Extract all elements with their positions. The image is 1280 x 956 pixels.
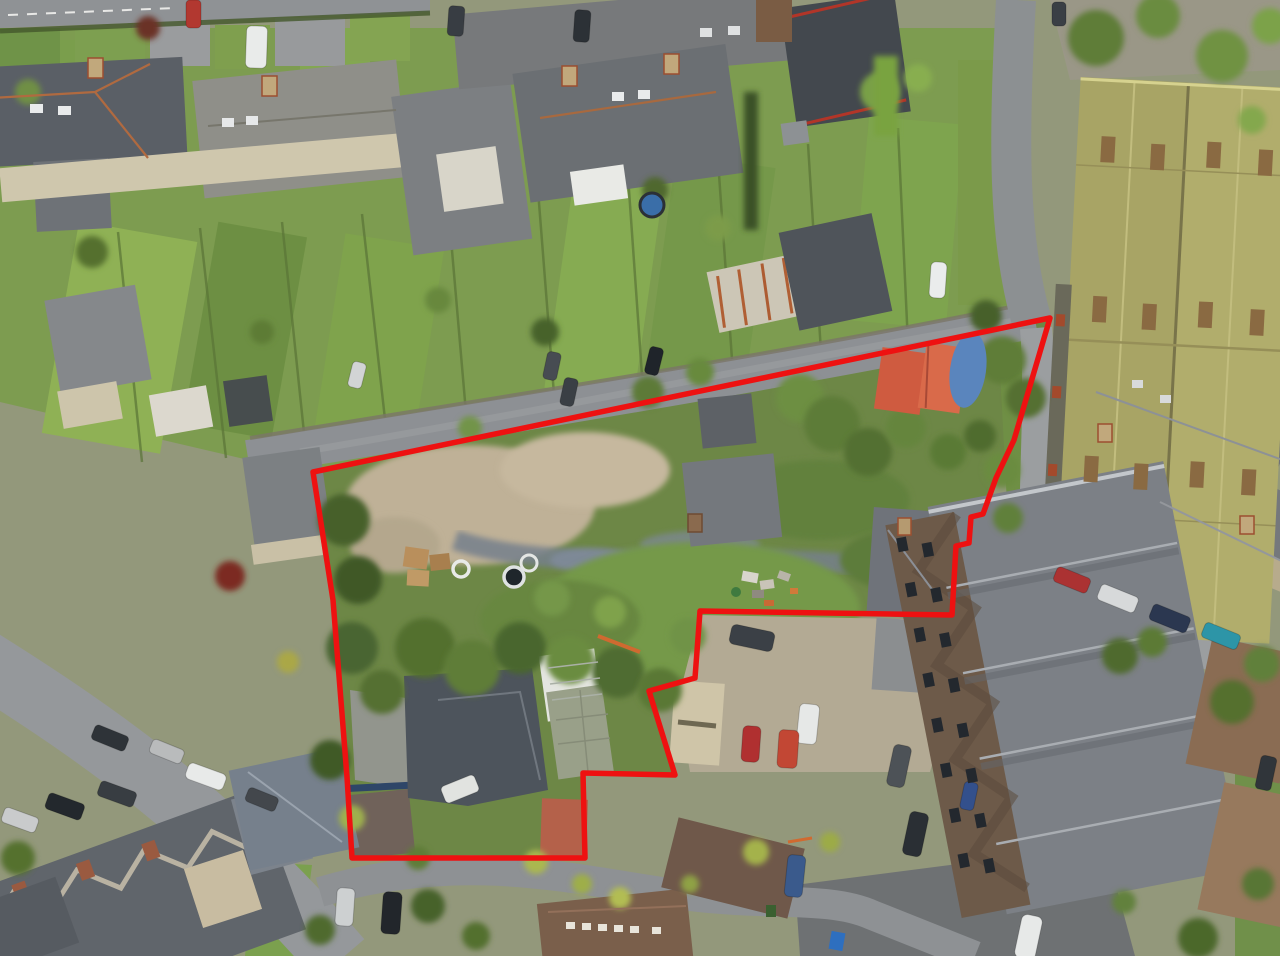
tree [686, 358, 714, 386]
hedge-strip [874, 56, 898, 136]
tree [494, 622, 546, 674]
site-house-roof-center2 [698, 393, 757, 448]
tree [1210, 680, 1254, 724]
tree [1, 841, 35, 875]
car [573, 9, 591, 42]
car [784, 854, 806, 898]
brown-roof [756, 0, 792, 42]
north-lane [1011, 0, 1032, 322]
hedge-bush [904, 64, 932, 92]
chimney [562, 66, 577, 86]
tree [592, 646, 644, 698]
lane-bush [609, 887, 631, 909]
industrial-skylight [1249, 309, 1264, 336]
terrace-window [614, 925, 623, 932]
lane-bush [681, 875, 699, 893]
skylight [728, 26, 740, 35]
terrace-window [630, 926, 639, 933]
pallet-stack [429, 553, 451, 571]
skylight [58, 106, 71, 115]
junk-orange [790, 588, 798, 594]
car [335, 887, 356, 926]
rust-door [1052, 386, 1062, 398]
skylight [1132, 380, 1143, 388]
industrial-skylight [1084, 456, 1099, 483]
chimney [1098, 424, 1112, 442]
dark-garden-shed [223, 375, 273, 427]
car [929, 261, 947, 298]
tree [1244, 646, 1280, 682]
chimney [1240, 516, 1254, 534]
skylight [612, 92, 624, 101]
pallet-stack [407, 569, 430, 586]
garden-tree [531, 318, 559, 346]
tree [1102, 638, 1138, 674]
aerial-photo: Aerial drone photograph of a residential… [0, 0, 1280, 956]
chimney [88, 58, 103, 78]
tree [964, 420, 996, 452]
front-driveway [275, 18, 345, 66]
aerial-photo-canvas: Aerial drone photograph of a residential… [0, 0, 1280, 956]
industrial-skylight [1133, 463, 1148, 490]
car [186, 0, 201, 28]
industrial-skylight [1150, 144, 1165, 171]
yellow-bush [277, 651, 299, 673]
industrial-skylight [1189, 461, 1204, 488]
conservatory-roof [436, 146, 503, 212]
trampoline [640, 193, 664, 217]
skylight [30, 104, 43, 113]
industrial-skylight [1142, 304, 1157, 331]
skylight [700, 28, 712, 37]
garden-tree [15, 79, 41, 105]
green-barrel [731, 587, 741, 597]
garden-tree [250, 320, 274, 344]
tree [1137, 627, 1167, 657]
red-tile-shed [540, 798, 588, 858]
terrace-window [598, 924, 607, 931]
industrial-skylight [1206, 142, 1221, 169]
tree [1242, 868, 1274, 900]
tree [1068, 10, 1124, 66]
suv [381, 891, 403, 934]
tree [1112, 890, 1136, 914]
tree [411, 889, 445, 923]
terrace-window [652, 927, 661, 934]
car [741, 725, 761, 762]
tree [444, 640, 500, 696]
lane-bush [572, 874, 592, 894]
red-foliage-bush [136, 16, 160, 40]
tree [1238, 106, 1266, 134]
house-roof [44, 285, 151, 396]
tree [1196, 30, 1248, 82]
hedge-strip [744, 92, 758, 230]
garden-shed [781, 120, 810, 145]
junk-debris [752, 590, 764, 598]
tree [305, 915, 335, 945]
lane-bush [524, 850, 548, 874]
chimney [688, 514, 702, 532]
chimney [898, 518, 911, 535]
skylight [222, 118, 234, 127]
car [447, 5, 465, 36]
skylight [1160, 395, 1171, 403]
car [245, 26, 267, 69]
chimney [664, 54, 679, 74]
garden-tree [76, 236, 108, 268]
skylight [246, 116, 258, 125]
car [1052, 2, 1066, 26]
rust-door [1056, 314, 1066, 326]
industrial-skylight [1258, 149, 1273, 176]
tree [462, 922, 490, 950]
car [796, 703, 820, 745]
junk-orange [764, 600, 774, 606]
bush [534, 580, 570, 616]
lane-bush [820, 832, 840, 852]
terrace-window [566, 922, 575, 929]
lane-bush [743, 839, 769, 865]
dirt-clearing [500, 432, 670, 508]
skylight [638, 90, 650, 99]
tree [546, 636, 594, 684]
terrace-window [582, 923, 591, 930]
tree [930, 434, 966, 470]
tree [886, 408, 926, 448]
tree [360, 670, 404, 714]
tree [334, 556, 382, 604]
chimney [262, 76, 277, 96]
industrial-skylight [1092, 296, 1107, 323]
red-foliage-tree [215, 561, 245, 591]
palm-tree [705, 215, 731, 241]
front-garden [0, 28, 60, 70]
front-garden [350, 15, 410, 61]
bush [594, 596, 626, 628]
industrial-skylight [1198, 301, 1213, 328]
rust-door [1048, 464, 1058, 476]
tree [993, 503, 1023, 533]
garden-tree [425, 287, 451, 313]
industrial-skylight [1241, 469, 1256, 496]
pallet-stack [403, 546, 430, 569]
dark-shed-roof [779, 213, 893, 331]
well-dark [504, 567, 524, 587]
car [777, 729, 800, 768]
industrial-skylight [1100, 136, 1115, 163]
tree [844, 428, 892, 476]
green-bin [766, 905, 776, 917]
